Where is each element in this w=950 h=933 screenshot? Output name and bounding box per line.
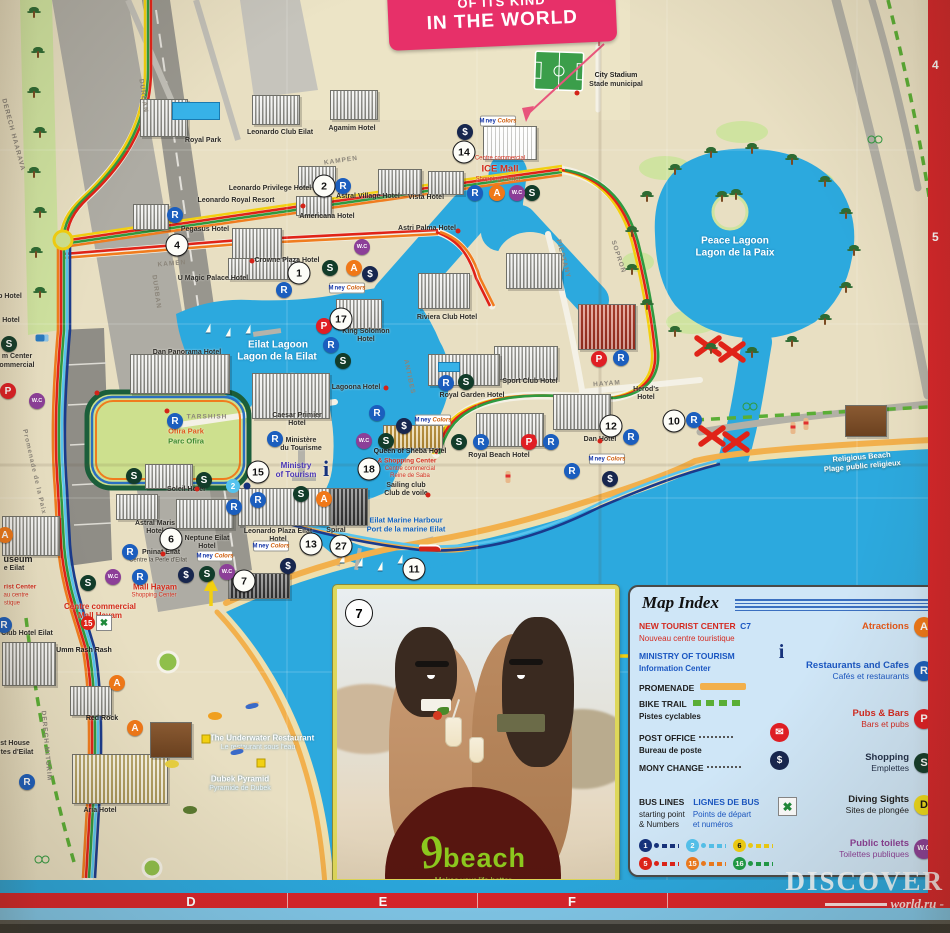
poi-badge-a-icon: A (316, 491, 332, 507)
building (116, 494, 158, 520)
poi-badge-r-icon: R (167, 413, 183, 429)
palm-tree-icon (705, 343, 717, 353)
sailboat-icon (398, 555, 403, 564)
beach-figure-icon (506, 471, 511, 483)
poi-badge-s-icon: S (1, 336, 17, 352)
building (578, 304, 636, 350)
map-label: e Eilat (4, 565, 25, 573)
building (252, 95, 300, 125)
poi-dot (456, 229, 461, 234)
legend-bus-line: 5 (639, 857, 679, 870)
map-label: Parc Ofira (168, 438, 204, 447)
grid-letter: D (186, 894, 195, 909)
grid-letter: E (379, 894, 388, 909)
legend-bus-line: 2 (686, 839, 726, 852)
poi-dot (384, 386, 389, 391)
building (330, 488, 368, 526)
map-label: useum (3, 554, 32, 564)
poi-badge-a-icon: A (489, 185, 505, 201)
palm-tree-icon (641, 191, 653, 201)
building (494, 346, 558, 380)
poi-badge-s-icon: S (458, 374, 474, 390)
palm-tree-icon (705, 147, 717, 157)
poi-dot (250, 259, 255, 264)
motorboat-icon (419, 545, 441, 552)
poi-dot (301, 204, 306, 209)
map-label: Hotel (2, 317, 20, 325)
building (845, 405, 887, 437)
map-label: au centre (3, 593, 28, 600)
map-label: Riviera Club Hotel (417, 314, 477, 322)
map-label: TARSHISH (187, 413, 228, 420)
poi-badge-r-icon: R (226, 499, 242, 515)
poi-badge-r-icon: R (276, 282, 292, 298)
money-change-sign: Mney Colors (329, 283, 365, 294)
map-label: Queen of Sheba Hotel (374, 448, 447, 456)
building (232, 228, 282, 260)
legend-bus-line: 1 (639, 839, 679, 852)
bus-start-x-icon: ✖ (778, 797, 797, 816)
legend-pubs: Pubs & Bars Bars et pubs P (853, 709, 935, 729)
poi-badge-s-icon: S (293, 486, 309, 502)
dotted-leader (699, 736, 733, 738)
map-label: Vista Hotel (408, 194, 444, 202)
swimming-pool (172, 102, 220, 120)
map-label: Lagoona Hotel (332, 384, 381, 392)
poi-badge-wc-icon: W.C (105, 569, 121, 585)
palm-tree-icon (626, 226, 638, 236)
map-index-legend: Map Index NEW TOURIST CENTER C7 Nouveau … (628, 585, 944, 877)
palm-tree-icon (840, 208, 852, 218)
fish-icon (183, 806, 197, 814)
poi-dot (95, 391, 100, 396)
building (70, 686, 112, 716)
poi-badge-r-icon: R (543, 434, 559, 450)
poi-badge-a-icon: A (109, 675, 125, 691)
bus-line-start-marker: 15 (81, 616, 95, 630)
poi-badge-r-icon: R (132, 569, 148, 585)
map-marker-number: 13 (300, 533, 323, 556)
palm-tree-icon (848, 245, 860, 255)
map-label: Centre la Perle d'Eilat (129, 558, 187, 565)
poi-badge-s-icon: S (524, 185, 540, 201)
palm-tree-icon (28, 87, 40, 97)
poi-badge-m-icon: $ (457, 124, 473, 140)
poi-badge-r-icon: R (323, 337, 339, 353)
poi-badge-p-icon: P (0, 383, 16, 399)
map-label: Astri Palma Hotel (398, 225, 456, 233)
poi-badge-m-icon: $ (280, 558, 296, 574)
map-label: Ministèredu Tourisme (280, 437, 321, 453)
poi-badge-s-icon: S (199, 566, 215, 582)
map-label: King SolomonHotel (342, 328, 389, 344)
map-label: Peace LagoonLagon de la Paix (696, 236, 775, 259)
map-label: Eilat Lagoon (248, 339, 308, 351)
map-marker-number: 11 (403, 558, 426, 581)
map-label: The Underwater Restaurant (210, 733, 314, 742)
grid-divider (287, 893, 288, 908)
building (176, 499, 234, 529)
poi-badge-wc-icon: W.C (509, 185, 525, 201)
building (330, 90, 378, 120)
palm-tree-icon (669, 164, 681, 174)
cocktail-glass (445, 717, 462, 747)
money-change-sign: Mney Colors (480, 116, 516, 127)
map-marker-number: 2 (313, 175, 336, 198)
legend-bus-line: 6 (733, 839, 773, 852)
map-label: Crowne Plaza Hotel (255, 257, 320, 265)
map-marker-number: 17 (330, 308, 353, 331)
poi-badge-r-icon: R (250, 492, 266, 508)
palm-tree-icon (786, 336, 798, 346)
sailboat-icon (226, 328, 231, 337)
legend-bike-trail: BIKE TRAIL Pistes cyclables (639, 693, 809, 722)
poi-badge-wc-icon: W.C (29, 393, 45, 409)
map-label: & Shopping Center (378, 457, 437, 464)
map-label: Centre commercialReine de Saba (385, 466, 435, 480)
poi-badge-p-icon: P (591, 351, 607, 367)
map-label: Pyramide de Dubek (209, 785, 270, 793)
palm-tree-icon (32, 47, 44, 57)
map-marker-number: 1 (288, 262, 311, 285)
poi-badge-s-icon: S (80, 575, 96, 591)
poi-dot (161, 552, 166, 557)
beach-figure-icon (804, 418, 809, 430)
poi-badge-r-icon: R (564, 463, 580, 479)
poi-badge-a-icon: A (127, 720, 143, 736)
map-marker-number: 15 (247, 461, 270, 484)
poi-dot (426, 493, 431, 498)
legend-title: Map Index (642, 593, 719, 613)
poi-badge-r-icon: R (623, 429, 639, 445)
map-label: Aria Hotel (83, 807, 116, 815)
cocktail-glass (469, 737, 484, 763)
map-label: Stade municipal (589, 81, 643, 89)
logo-9-swoosh: 9 (415, 823, 449, 880)
map-label: tes d'Eilat (1, 749, 34, 757)
palm-tree-icon (716, 191, 728, 201)
building (72, 754, 168, 804)
map-label: Neptune EilatHotel (185, 535, 230, 551)
swimming-pool (438, 362, 460, 372)
eilat-tourist-map: OF ITS KIND IN THE WORLD 9beach Makes yo… (0, 0, 950, 933)
map-label: Caesar PrimierHotel (272, 412, 321, 428)
poi-badge-a-icon: A (346, 260, 362, 276)
palm-tree-icon (819, 176, 831, 186)
poi-badge-r-icon: R (122, 544, 138, 560)
money-change-sign: Mney Colors (589, 454, 625, 465)
poi-badge-m-icon: $ (396, 418, 412, 434)
poi-badge-r-icon: R (369, 405, 385, 421)
palm-tree-icon (819, 314, 831, 324)
bus-icon (36, 335, 49, 342)
poi-badge-wc-icon: W.C (356, 433, 372, 449)
map-label: Sailing clubClub de voile (384, 482, 428, 498)
map-label: Agamim Hotel (328, 125, 375, 133)
diving-site-marker (257, 759, 266, 768)
building (130, 354, 230, 394)
poi-badge-r-icon: R (335, 178, 351, 194)
poi-dot (195, 487, 200, 492)
map-label: Royal Garden Hotel (440, 392, 505, 400)
poi-badge-r-icon: R (438, 375, 454, 391)
map-label: Shopping Center (475, 177, 520, 184)
money-change-dollar-icon: $ (770, 751, 789, 770)
map-label: b Hotel (0, 293, 22, 301)
poi-badge-p-icon: P (521, 434, 537, 450)
bikini-top (497, 714, 545, 732)
palm-tree-icon (34, 207, 46, 217)
poi-badge-r-icon: R (467, 185, 483, 201)
legend-bus-line: 15 (686, 857, 726, 870)
bus-start-x-icon: ✖ (96, 615, 112, 631)
poi-badge-m-icon: $ (602, 471, 618, 487)
building (378, 169, 422, 195)
map-label: Herod'sHotel (633, 386, 659, 402)
map-label: Dan Panorama Hotel (153, 349, 221, 357)
poi-badge-r-icon: R (267, 431, 283, 447)
legend-bus-line-colors: 12651516 (639, 835, 819, 871)
grid-letter: F (568, 894, 576, 909)
poi-badge-r-icon: R (19, 774, 35, 790)
map-marker-number: 6 (160, 528, 183, 551)
palm-tree-icon (34, 287, 46, 297)
poi-badge-r-icon: R (167, 207, 183, 223)
palm-tree-icon (34, 127, 46, 137)
inset-number-marker: 7 (345, 599, 373, 627)
map-label: Royal Park (185, 137, 221, 145)
legend-diving: Diving Sights Sites de plongée D (846, 795, 934, 815)
diving-site-marker (202, 735, 211, 744)
dotted-leader (707, 766, 741, 768)
beach-brand-logo: 9beach Makes your life better (385, 787, 561, 883)
palm-tree-icon (669, 326, 681, 336)
poi-dot (598, 439, 603, 444)
map-label: Umm Rash Rash (56, 647, 112, 655)
map-label: Royal Beach Hotel (468, 452, 529, 460)
post-office-envelope-icon: ✉ (770, 723, 789, 742)
building (428, 171, 464, 195)
palm-tree-icon (626, 264, 638, 274)
poi-badge-s-icon: S (335, 353, 351, 369)
poi-dot (165, 409, 170, 414)
map-label: stique (4, 601, 20, 608)
palm-tree-icon (786, 154, 798, 164)
palm-tree-icon (746, 347, 758, 357)
map-label: Lagon de la Eilat (237, 351, 316, 363)
map-label: Centre commercial (475, 156, 525, 163)
hair (502, 617, 574, 767)
map-marker-number: 12 (600, 415, 623, 438)
bike-trail-dashes-icon (693, 700, 743, 706)
bus-line-start-marker: 2 (226, 479, 240, 493)
map-label: Ministryof Tourism (276, 461, 317, 479)
poi-badge-s-icon: S (378, 433, 394, 449)
promenade-bar-icon (700, 683, 746, 690)
map-label: m Center (2, 353, 32, 361)
poi-badge-s-icon: S (451, 434, 467, 450)
grid-number: 4 (932, 58, 939, 72)
poi-badge-r-icon: R (613, 350, 629, 366)
map-marker-number: 7 (233, 570, 256, 593)
map-label: City Stadium (595, 72, 638, 80)
map-label: Red Rock (86, 715, 118, 723)
building (150, 722, 192, 758)
poi-badge-s-icon: S (322, 260, 338, 276)
map-marker-number: 10 (663, 410, 686, 433)
money-change-sign: Mney Colors (197, 551, 233, 562)
photo-inset-beach: 9beach Makes your life better 7 (333, 585, 619, 883)
building (133, 204, 169, 230)
grid-stripe-right: 45 (928, 0, 950, 908)
grid-stripe-bottom: DEF (0, 880, 950, 933)
legend-rules (735, 599, 932, 613)
legend-attractions: Atractions A (862, 617, 934, 637)
info-icon: i (772, 643, 791, 662)
palm-tree-icon (30, 247, 42, 257)
map-marker-number: 4 (166, 234, 189, 257)
bus-start-dot (244, 483, 251, 490)
palm-tree-icon (28, 167, 40, 177)
palm-tree-icon (730, 189, 742, 199)
poi-badge-s-icon: S (196, 472, 212, 488)
legend-toilets: Public toilets Toilettes publiques W.C (839, 839, 934, 859)
map-label: Pegasus Hotel (181, 226, 229, 234)
legend-shopping: Shopping Emplettes S (865, 753, 934, 773)
palm-tree-icon (28, 7, 40, 17)
money-change-sign: Mney Colors (253, 541, 289, 552)
map-marker-number: 18 (358, 458, 381, 481)
poi-badge-r-icon: R (686, 412, 702, 428)
poi-badge-i-icon: i (318, 461, 334, 477)
sunglasses-icon (415, 661, 449, 667)
poi-badge-wc-icon: W.C (354, 239, 370, 255)
poi-badge-s-icon: S (126, 468, 142, 484)
map-label: Astral Village Hotel (336, 193, 400, 201)
map-label: Eilat Marine HarbourPort de la marine Ei… (367, 516, 446, 533)
drink-garnish (437, 707, 449, 715)
map-label: Leonardo Royal Resort (197, 197, 274, 205)
map-label: Leonardo Club Eilat (247, 129, 313, 137)
poi-badge-m-icon: $ (362, 266, 378, 282)
grid-number: 5 (932, 230, 939, 244)
fish-icon (165, 760, 179, 768)
legend-bus-line: 16 (733, 857, 773, 870)
palm-tree-icon (641, 299, 653, 309)
poi-dot (575, 91, 580, 96)
sailboat-icon (206, 324, 211, 333)
map-label: U Magic Palace Hotel (178, 275, 248, 283)
palm-tree-icon (840, 282, 852, 292)
map-marker-number: 14 (453, 141, 476, 164)
grid-divider (667, 893, 668, 908)
map-label: Dubek Pyramid (211, 774, 269, 783)
map-label: Sport Club Hotel (502, 378, 557, 386)
map-label: rist Center (4, 583, 37, 590)
sailboat-icon (246, 325, 251, 334)
sailboat-icon (378, 562, 383, 571)
money-change-sign: Mney Colors (415, 415, 451, 426)
map-label: st House (0, 740, 30, 748)
bicycle-icon (868, 134, 883, 143)
building (418, 273, 470, 309)
map-label: ICE Mall (482, 165, 519, 176)
bicycle-icon (35, 854, 50, 863)
sunglasses-icon (509, 659, 543, 665)
beach-figure-icon (791, 422, 796, 434)
map-label: Americana Hotel (299, 213, 354, 221)
bicycle-icon (743, 401, 758, 410)
fish-icon (208, 712, 222, 720)
logo-word: beach (443, 843, 526, 874)
poi-badge-r-icon: R (473, 434, 489, 450)
grid-divider (477, 893, 478, 908)
poi-badge-m-icon: $ (178, 567, 194, 583)
sailboat-icon (358, 558, 363, 567)
building (2, 642, 56, 686)
map-label: commercial (0, 362, 34, 370)
legend-restaurants: Restaurants and Cafes Cafés et restauran… (806, 661, 934, 681)
building (506, 253, 562, 289)
map-marker-number: 27 (330, 535, 353, 558)
map-label: Shopping Center (131, 593, 176, 600)
legend-new-tourist-center: NEW TOURIST CENTER C7 Nouveau centre tou… (639, 615, 809, 644)
map-label: Leonardo Privilege Hotel (229, 185, 311, 193)
palm-tree-icon (746, 143, 758, 153)
